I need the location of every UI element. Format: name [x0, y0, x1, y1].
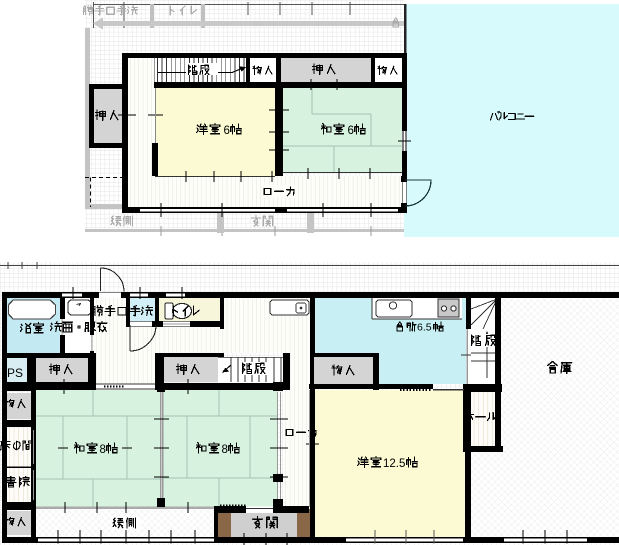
svg-text:8: 8	[222, 444, 228, 456]
svg-text:12.5: 12.5	[383, 458, 405, 470]
svg-text:6: 6	[224, 125, 230, 137]
svg-text:6.5: 6.5	[417, 322, 432, 334]
svg-text:PS: PS	[7, 366, 23, 380]
svg-text:6: 6	[348, 125, 354, 137]
svg-text:8: 8	[100, 444, 106, 456]
